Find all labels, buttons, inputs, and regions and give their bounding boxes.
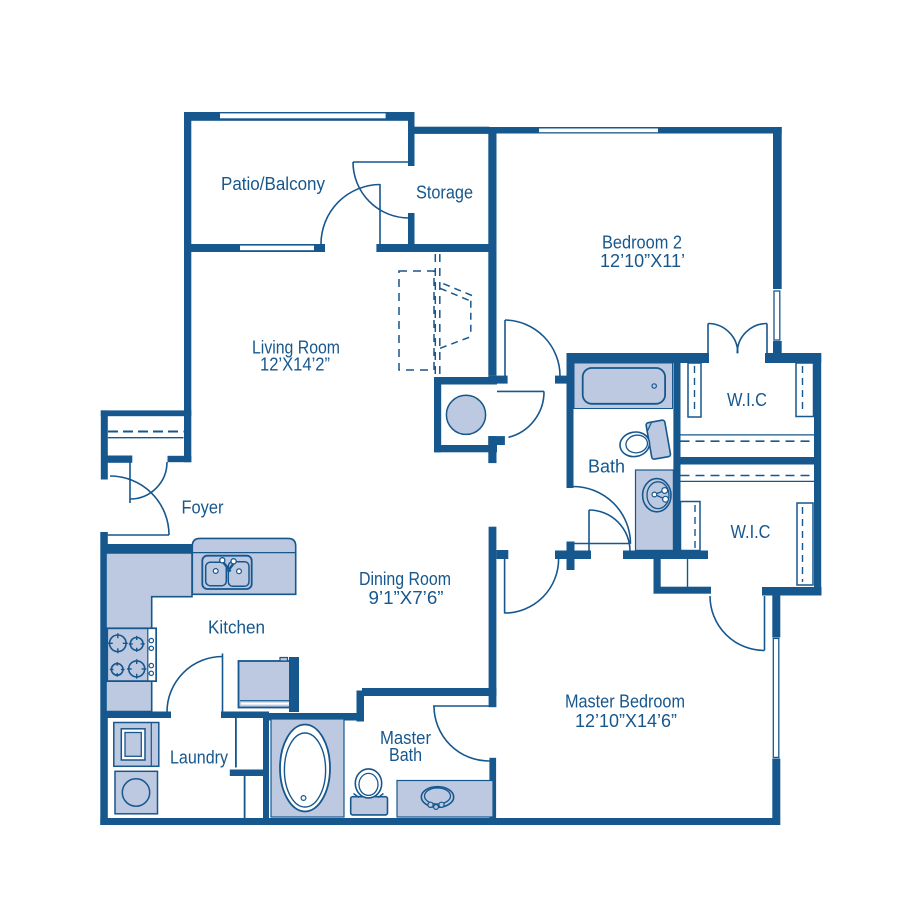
svg-text:Patio/Balcony: Patio/Balcony (221, 174, 325, 194)
svg-text:12’10”X11’: 12’10”X11’ (600, 251, 685, 271)
svg-text:Laundry: Laundry (170, 748, 228, 768)
svg-text:Bath: Bath (389, 745, 422, 765)
svg-text:Bedroom 2: Bedroom 2 (602, 233, 682, 253)
svg-text:Storage: Storage (416, 183, 473, 203)
svg-text:Dining Room: Dining Room (359, 569, 451, 589)
svg-text:W.I.C: W.I.C (727, 390, 767, 410)
svg-text:Kitchen: Kitchen (208, 618, 265, 638)
svg-text:Bath: Bath (588, 457, 625, 477)
svg-text:Foyer: Foyer (182, 498, 224, 518)
svg-text:Master Bedroom: Master Bedroom (565, 692, 685, 712)
svg-text:12’X14’2”: 12’X14’2” (260, 355, 330, 375)
svg-text:12’10”X14’6”: 12’10”X14’6” (575, 711, 677, 731)
svg-text:W.I.C: W.I.C (731, 522, 771, 542)
svg-text:9’1”X7’6”: 9’1”X7’6” (369, 588, 444, 608)
